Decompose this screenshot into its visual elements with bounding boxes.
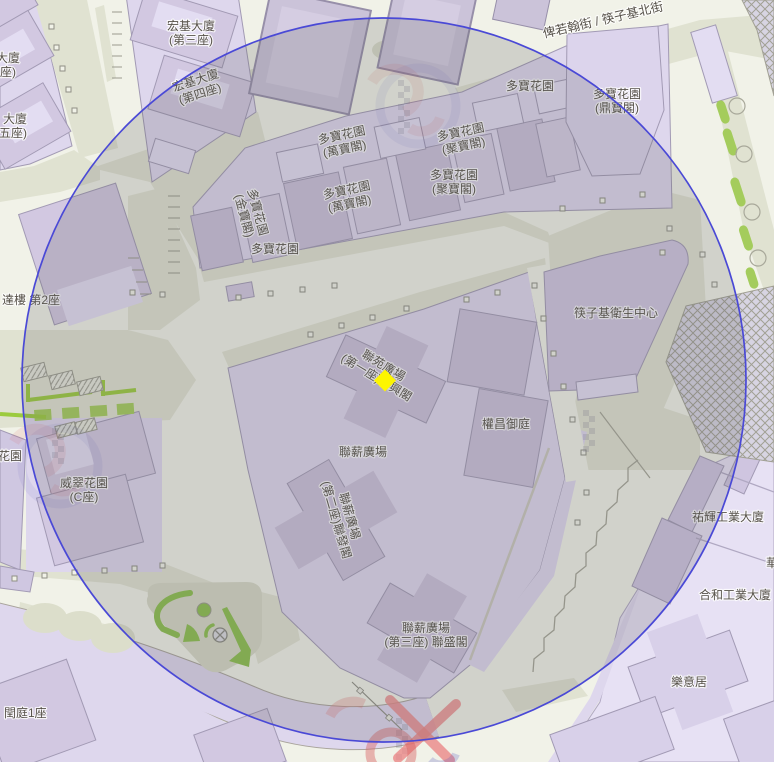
svg-text:華: 華 [766,556,774,570]
svg-text:座): 座) [0,64,16,79]
svg-text:閏庭1座: 閏庭1座 [4,705,47,720]
svg-text:花園: 花園 [0,448,22,463]
svg-text:(第三座): (第三座) [169,32,213,47]
svg-text:大廈: 大廈 [3,111,27,126]
svg-text:大廈: 大廈 [0,50,20,65]
svg-text:樂意居: 樂意居 [671,674,707,689]
svg-text:合和工業大廈: 合和工業大廈 [699,587,771,602]
svg-text:宏基大廈: 宏基大廈 [167,18,215,33]
svg-text:五座): 五座) [0,125,27,140]
